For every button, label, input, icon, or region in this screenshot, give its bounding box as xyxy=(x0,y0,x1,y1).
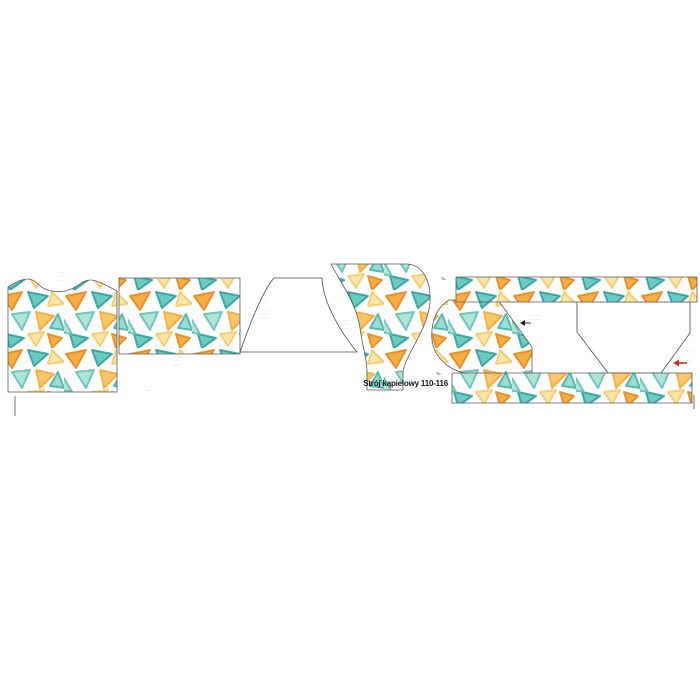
under-back-panel-mark: ⌐·· xyxy=(147,389,161,393)
pattern-sheet: ·· ···· ···· ·· ··· ······· · ·· ·· ··· … xyxy=(0,0,700,700)
fabric-marker-top: Tk: xyxy=(441,277,446,281)
back-panel-label: ·· ··· ····· ···· ··· ······· xyxy=(152,355,202,367)
piece-front-bodice xyxy=(8,279,117,392)
sheet-title: Strój kąpielowy 110-116 xyxy=(348,379,448,388)
front-bodice-label: ·· ···· ···· ·· ··· ······· · ·· xyxy=(40,271,84,283)
pattern-canvas xyxy=(0,0,700,700)
piece-back-panel-rectangle xyxy=(119,278,240,354)
trapezoid-annotation: ······ ··· ···· ·· ·· ··· ··· ···· ·· xyxy=(685,349,700,366)
bottoms-outline-label: ····· ·· ··· ···· ·· ·· ··· ···· ·· ·· ·… xyxy=(244,297,284,320)
piece-waistband-strip-bottom xyxy=(452,373,692,403)
side-panel-annotation: ·· ······ ··· ·· ······· ····· xyxy=(530,314,554,326)
piece-trapezoid-outline-white xyxy=(577,302,690,373)
piece-waistband-strip-top xyxy=(456,277,697,302)
piece-side-panel-printed xyxy=(432,300,532,374)
fabric-marker-bottom: Tk:- xyxy=(436,372,442,376)
bottoms-front-label: ···· ·· ··· ·· ···· ······ · ··· xyxy=(331,319,361,331)
